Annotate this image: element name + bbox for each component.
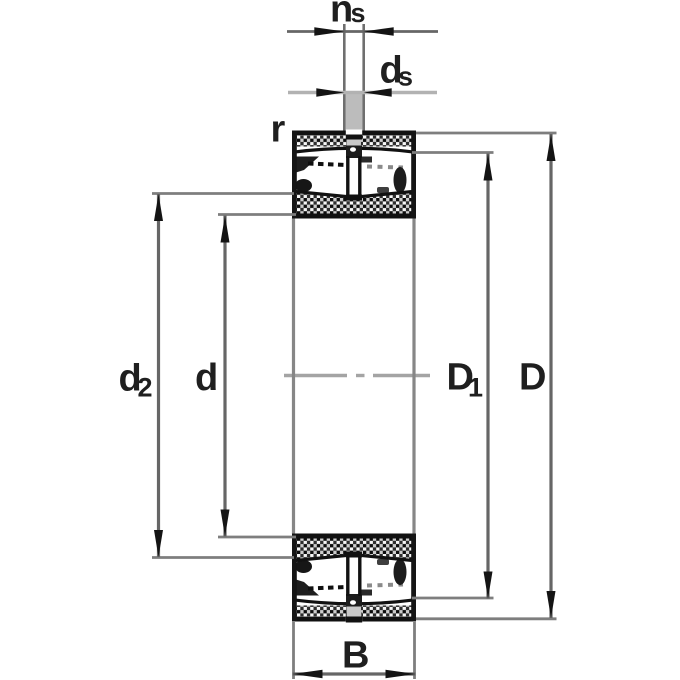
svg-text:s: s: [398, 62, 413, 92]
svg-text:2: 2: [138, 373, 153, 403]
svg-text:s: s: [351, 0, 366, 28]
svg-text:B: B: [342, 635, 369, 677]
svg-text:r: r: [271, 109, 286, 151]
svg-text:d: d: [195, 357, 218, 399]
svg-text:D: D: [519, 357, 546, 399]
svg-text:1: 1: [468, 373, 483, 403]
